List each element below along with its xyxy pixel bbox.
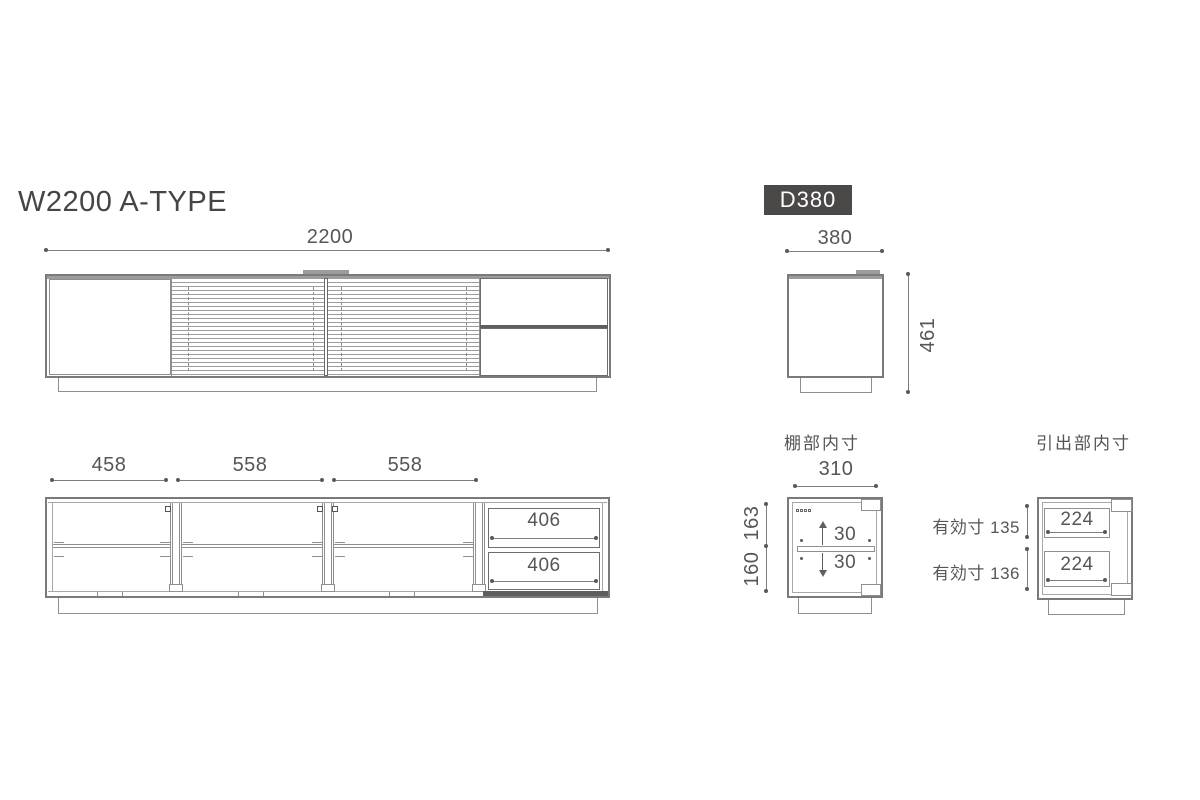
dim-dot xyxy=(1025,547,1029,551)
rail-tick xyxy=(389,592,390,596)
dim-dot xyxy=(906,390,910,394)
dim-line-drawer-inner xyxy=(1048,580,1106,581)
dim-dot xyxy=(906,272,910,276)
dim-compartment-2: 558 xyxy=(210,454,290,477)
dim-line-segment xyxy=(178,480,322,481)
inner-right-line xyxy=(602,502,603,591)
hinge-mark xyxy=(317,506,323,512)
dim-drawer-inner-width-bottom: 224 xyxy=(1044,554,1110,576)
divider-face xyxy=(179,503,182,591)
dim-dot xyxy=(1025,535,1029,539)
rail-tick xyxy=(238,592,239,596)
pin-stub xyxy=(463,556,473,557)
dim-dot xyxy=(474,478,478,482)
dim-compartment-1: 458 xyxy=(69,454,149,477)
dim-line-shelf-width xyxy=(795,486,878,487)
dim-dot xyxy=(1025,504,1029,508)
divider-foot xyxy=(321,584,335,592)
pin-hole xyxy=(808,509,811,512)
dim-compartment-3: 558 xyxy=(365,454,445,477)
rail-tick xyxy=(97,592,98,596)
dim-line-depth xyxy=(787,251,884,252)
dim-effective-height-top: 有効寸 135 xyxy=(925,513,1020,538)
dim-overall-width: 2200 xyxy=(290,226,370,249)
dim-line-drawer-inner xyxy=(1048,532,1106,533)
plinth-base xyxy=(1048,600,1125,615)
plinth-base xyxy=(800,378,872,393)
arrow-up-icon xyxy=(819,521,827,528)
hinge-mark xyxy=(332,506,338,512)
back-rail-notch-top xyxy=(1111,499,1132,512)
plinth-base xyxy=(58,378,597,392)
dim-line-segment xyxy=(52,480,166,481)
dim-dot xyxy=(594,536,598,540)
dim-line-drawer xyxy=(492,581,596,582)
divider-face xyxy=(170,503,173,591)
back-rail-notch-bottom xyxy=(1111,583,1132,596)
door-edge-dash xyxy=(341,287,342,371)
dim-dot xyxy=(594,579,598,583)
back-rail-notch-bottom xyxy=(861,584,881,596)
rail-tick xyxy=(122,592,123,596)
divider-face xyxy=(322,503,325,591)
dim-dot xyxy=(176,478,180,482)
door-edge-dash xyxy=(313,287,314,371)
divider-face xyxy=(473,503,476,591)
dim-drawer-width-bottom: 406 xyxy=(488,555,600,577)
dim-pitch-down: 30 xyxy=(834,552,856,574)
dim-effective-height-bottom: 有効寸 136 xyxy=(925,559,1020,584)
dim-dot xyxy=(50,478,54,482)
dim-pitch-up: 30 xyxy=(834,524,856,546)
left-door-panel xyxy=(49,279,171,375)
side-outline xyxy=(787,274,884,378)
pin-stub xyxy=(335,556,345,557)
technical-drawing-page: W2200 A-TYPE 2200 D380 380 xyxy=(0,0,1200,800)
rail-tick xyxy=(414,592,415,596)
dim-dot xyxy=(1046,578,1050,582)
arrow-down-icon xyxy=(819,570,827,577)
dim-line-segment xyxy=(334,480,476,481)
dim-dot xyxy=(874,484,878,488)
divider-face xyxy=(482,503,485,591)
depth-badge: D380 xyxy=(764,185,852,215)
plinth-base xyxy=(58,598,598,614)
dim-shelf-width: 310 xyxy=(796,458,876,481)
dim-dot xyxy=(793,484,797,488)
dim-dot xyxy=(764,589,768,593)
shelf-pin xyxy=(868,557,871,560)
dim-line-effective-bottom xyxy=(1027,549,1028,590)
plinth-base xyxy=(798,598,872,614)
dim-height: 461 xyxy=(918,307,938,363)
drawer-front-bottom xyxy=(480,328,608,376)
divider-foot xyxy=(169,584,183,592)
dim-dot xyxy=(1103,578,1107,582)
dim-dot xyxy=(606,248,610,252)
pin-hole xyxy=(804,509,807,512)
middle-shelf xyxy=(53,544,473,548)
door-edge-dash xyxy=(188,287,189,371)
dim-dot xyxy=(880,249,884,253)
drawer-rail-bar xyxy=(483,591,608,596)
pin-hole xyxy=(796,509,799,512)
shelf-pin xyxy=(800,557,803,560)
pin-stub xyxy=(183,542,193,543)
dim-dot xyxy=(490,536,494,540)
back-rail-notch-top xyxy=(861,499,881,511)
pitch-arrow-line-down xyxy=(822,553,823,571)
hinge-mark xyxy=(165,506,171,512)
page-title: W2200 A-TYPE xyxy=(18,186,227,219)
pin-stub xyxy=(183,556,193,557)
dim-line-drawer xyxy=(492,538,596,539)
pin-stub xyxy=(160,556,170,557)
dim-lower-height: 160 xyxy=(742,551,762,587)
shelf-detail-title: 棚部内寸 xyxy=(784,429,860,454)
top-panel-edge xyxy=(789,276,882,279)
dim-dot xyxy=(785,249,789,253)
dim-line-overall-width xyxy=(46,250,610,251)
dim-dot xyxy=(764,544,768,548)
louver-door-split xyxy=(324,278,328,376)
pin-hole xyxy=(800,509,803,512)
pin-stub xyxy=(463,542,473,543)
shelf-pin xyxy=(868,539,871,542)
door-edge-dash xyxy=(466,287,467,371)
dim-dot xyxy=(1103,530,1107,534)
rail-tick xyxy=(263,592,264,596)
dim-drawer-inner-width-top: 224 xyxy=(1044,509,1110,531)
dim-dot xyxy=(332,478,336,482)
pin-stub xyxy=(335,542,345,543)
dim-line-effective-top xyxy=(1027,506,1028,538)
dim-dot xyxy=(44,248,48,252)
shelf-pin xyxy=(800,539,803,542)
pin-stub xyxy=(54,542,64,543)
dim-depth: 380 xyxy=(795,227,875,250)
dim-line-height xyxy=(908,274,909,394)
dim-dot xyxy=(1046,530,1050,534)
dim-dot xyxy=(1025,587,1029,591)
dim-dot xyxy=(320,478,324,482)
dim-drawer-width-top: 406 xyxy=(488,510,600,532)
drawer-detail-title: 引出部内寸 xyxy=(1036,429,1131,454)
drawer-front-top xyxy=(480,278,608,326)
dim-line-heights xyxy=(766,504,767,593)
pitch-arrow-line-up xyxy=(822,527,823,545)
dim-dot xyxy=(490,579,494,583)
pin-stub xyxy=(312,542,322,543)
pin-stub xyxy=(160,542,170,543)
dim-dot xyxy=(164,478,168,482)
divider-face xyxy=(331,503,334,591)
pin-stub xyxy=(312,556,322,557)
dim-upper-height: 163 xyxy=(742,505,762,541)
pin-stub xyxy=(54,556,64,557)
dim-dot xyxy=(764,502,768,506)
